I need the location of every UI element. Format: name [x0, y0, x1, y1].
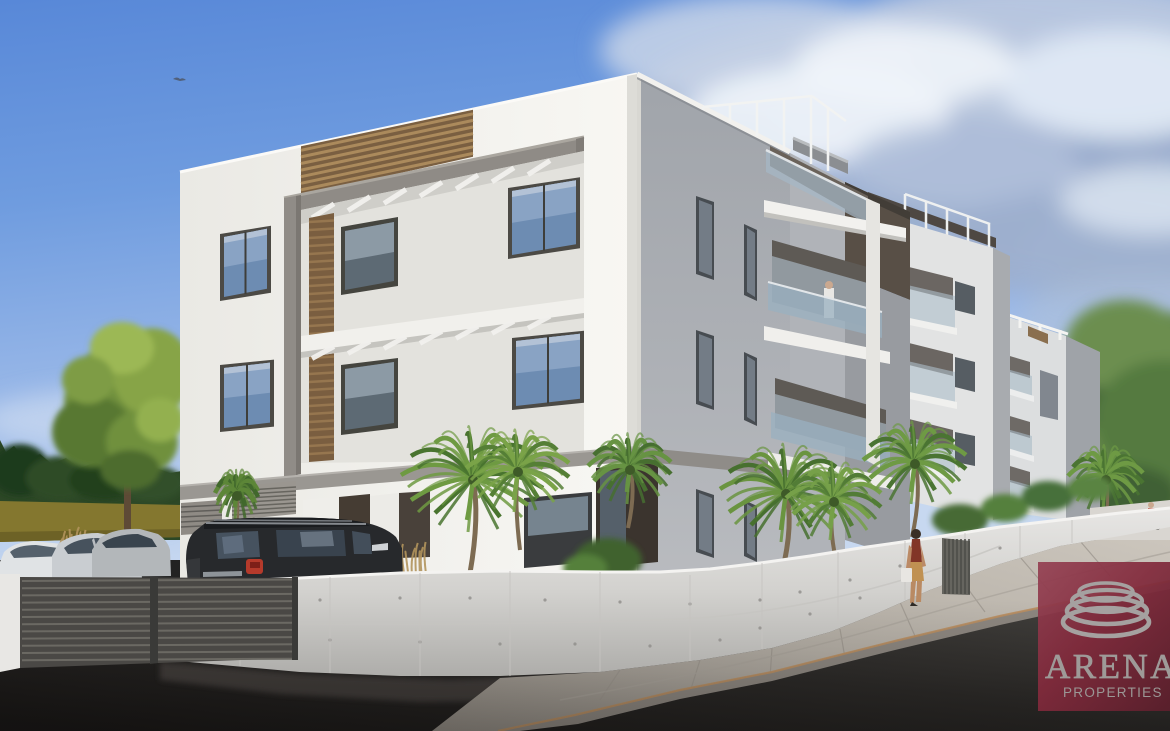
- svg-text:PROPERTIES: PROPERTIES: [1063, 685, 1163, 700]
- svg-text:ARENA: ARENA: [1045, 647, 1170, 686]
